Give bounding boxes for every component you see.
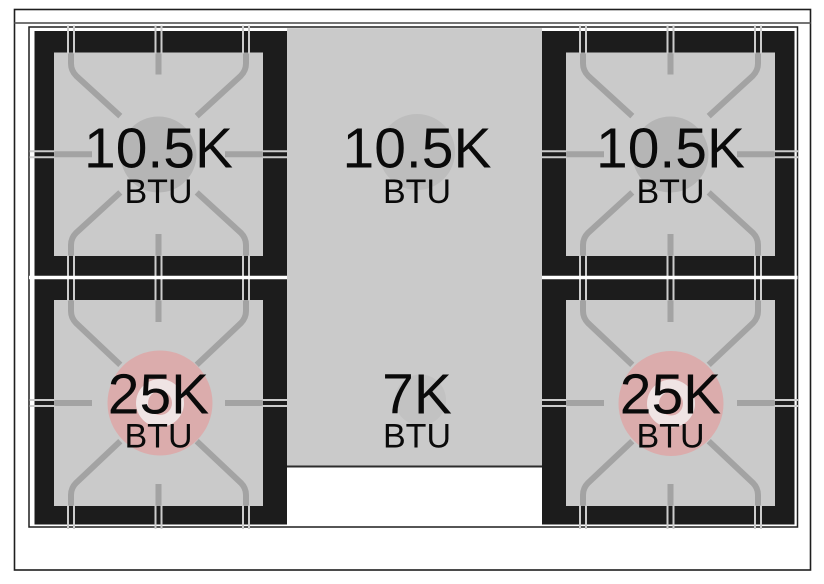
svg-text:BTU: BTU	[637, 418, 705, 456]
svg-text:BTU: BTU	[125, 173, 193, 211]
svg-text:10.5K: 10.5K	[596, 117, 745, 181]
svg-text:10.5K: 10.5K	[343, 117, 492, 181]
svg-text:BTU: BTU	[125, 418, 193, 456]
svg-text:10.5K: 10.5K	[84, 117, 233, 181]
svg-text:BTU: BTU	[637, 173, 705, 211]
svg-text:BTU: BTU	[383, 418, 451, 456]
svg-text:BTU: BTU	[383, 173, 451, 211]
